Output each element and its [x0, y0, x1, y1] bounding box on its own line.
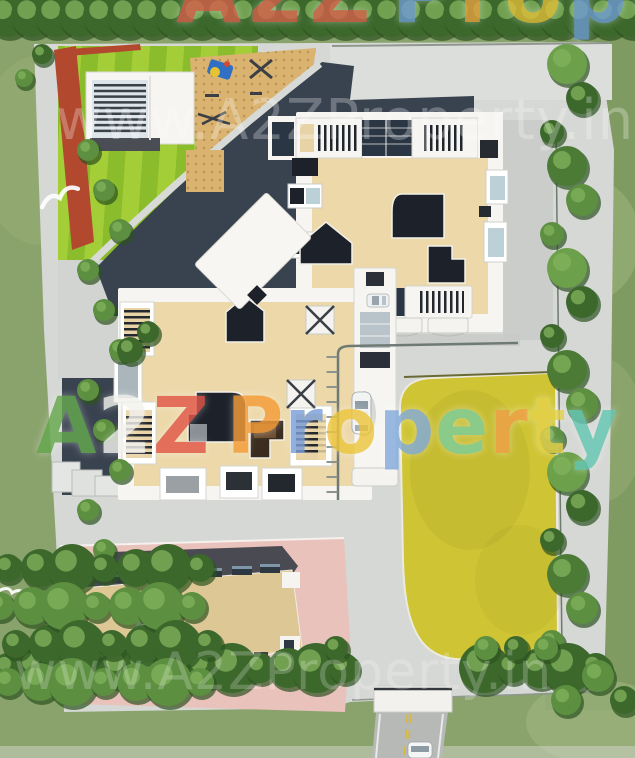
parked-car	[367, 294, 389, 307]
clubhouse-building	[86, 72, 194, 151]
courtyard-cutout	[392, 194, 444, 238]
car-at-gate	[408, 742, 432, 758]
site-plan-svg	[0, 0, 635, 758]
site-plan-render: www.A2ZProperty.in A2Z Property A2Z Prop…	[0, 0, 635, 758]
car-white	[352, 391, 376, 437]
entrance-gate	[372, 686, 452, 758]
open-lawn-yellow	[400, 372, 565, 659]
